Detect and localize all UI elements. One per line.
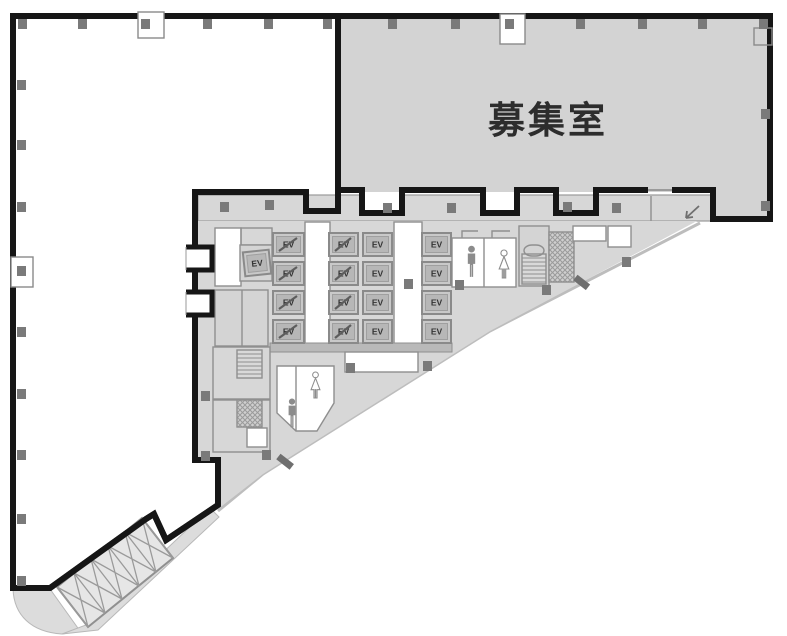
column-marker <box>203 19 212 29</box>
core-wall-band <box>270 343 452 352</box>
column-marker <box>638 19 647 29</box>
elevator-label: EV <box>431 298 443 308</box>
column-marker <box>201 451 210 461</box>
recruitment-room-label: 募集室 <box>487 99 608 141</box>
column-marker <box>388 19 397 29</box>
floor-plan-svg: EVEVEVEVEVEVEVEVEVEVEVEVEVEVEVEVEV 募集室 <box>0 0 787 636</box>
service-room <box>608 226 631 247</box>
bank-single: EV <box>243 250 271 277</box>
service-room <box>345 352 418 372</box>
service-room <box>247 428 267 447</box>
column-marker <box>542 285 551 295</box>
elevator-label: EV <box>372 298 384 308</box>
floor-plan: EVEVEVEVEVEVEVEVEVEVEVEVEVEVEVEVEV 募集室 <box>0 0 787 636</box>
column-marker <box>698 19 707 29</box>
column-marker <box>761 201 770 211</box>
stairs-icon <box>522 254 546 284</box>
column-marker <box>262 450 271 460</box>
service-room <box>215 228 241 286</box>
column-marker <box>201 391 210 401</box>
column-marker <box>141 19 150 29</box>
service-room <box>573 226 606 241</box>
column-marker <box>451 19 460 29</box>
column-marker <box>264 19 273 29</box>
elevator-label: EV <box>251 258 264 269</box>
column-marker <box>759 19 768 29</box>
column-marker <box>612 203 621 213</box>
column-marker <box>455 280 464 290</box>
column-marker <box>323 19 332 29</box>
column-marker <box>17 450 26 460</box>
elevator-label: EV <box>431 327 443 337</box>
column-marker <box>346 363 355 373</box>
column-marker <box>383 203 392 213</box>
column-marker <box>17 327 26 337</box>
elevator-label: EV <box>372 327 384 337</box>
vent-shaft-icon <box>237 400 262 427</box>
elevator-hall <box>305 222 330 348</box>
column-marker <box>17 576 26 586</box>
column-marker <box>761 109 770 119</box>
wall-pocket <box>486 193 514 210</box>
column-marker <box>17 202 26 212</box>
wall-pocket <box>365 193 399 210</box>
elevator-label: EV <box>372 269 384 279</box>
column-marker <box>18 19 27 29</box>
elevator-label: EV <box>431 240 443 250</box>
column-marker <box>17 389 26 399</box>
column-marker <box>78 19 87 29</box>
column-marker <box>220 202 229 212</box>
vent-shaft-icon <box>549 232 574 282</box>
stairs-icon <box>237 350 262 378</box>
column-marker <box>423 361 432 371</box>
column-marker <box>576 19 585 29</box>
column-marker <box>447 203 456 213</box>
column-marker <box>17 140 26 150</box>
column-marker <box>265 200 274 210</box>
elevator-label: EV <box>372 240 384 250</box>
elevator-label: EV <box>431 269 443 279</box>
column-marker <box>505 19 514 29</box>
column-marker <box>622 257 631 267</box>
column-marker <box>404 279 413 289</box>
column-marker <box>17 514 26 524</box>
column-marker <box>17 80 26 90</box>
column-marker <box>563 202 572 212</box>
column-marker <box>17 266 26 276</box>
